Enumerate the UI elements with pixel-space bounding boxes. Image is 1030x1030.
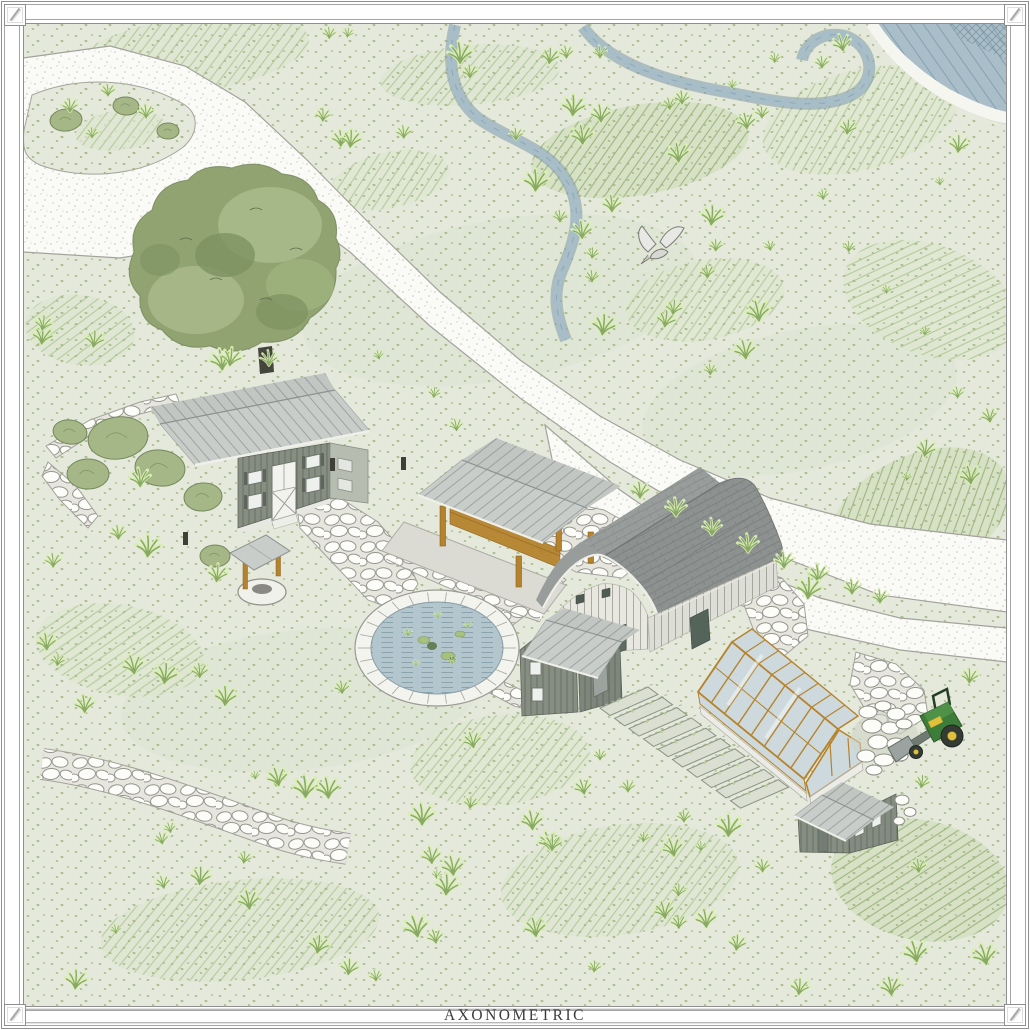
corner-mark-bottom-right: [1005, 1005, 1026, 1026]
shed-window: [532, 688, 543, 701]
pavilion-post: [440, 506, 446, 546]
axonometric-drawing: AXONOMETRIC: [0, 0, 1030, 1030]
shed-window: [530, 662, 541, 675]
farmhouse-end-wall: [330, 443, 368, 503]
corner-mark-top-right: [1005, 5, 1026, 26]
lily-pad: [455, 631, 465, 637]
corner-mark-top-left: [5, 5, 26, 26]
lily-pad: [418, 637, 430, 644]
fence-post: [330, 458, 335, 471]
pavilion-post: [516, 556, 522, 587]
garden-pond: [355, 590, 519, 706]
pond-frog: [427, 642, 437, 650]
drawing-sheet: AXONOMETRIC: [0, 0, 1030, 1030]
sheet-title: AXONOMETRIC: [444, 1007, 586, 1024]
fence-post: [183, 532, 188, 545]
barn-window: [576, 594, 584, 604]
barn-window: [602, 588, 610, 598]
corner-mark-bottom-left: [5, 1005, 26, 1026]
farmhouse-barn-door: [272, 461, 298, 529]
fence-post: [401, 457, 406, 470]
site-plan-scene: [21, 1, 1030, 1007]
